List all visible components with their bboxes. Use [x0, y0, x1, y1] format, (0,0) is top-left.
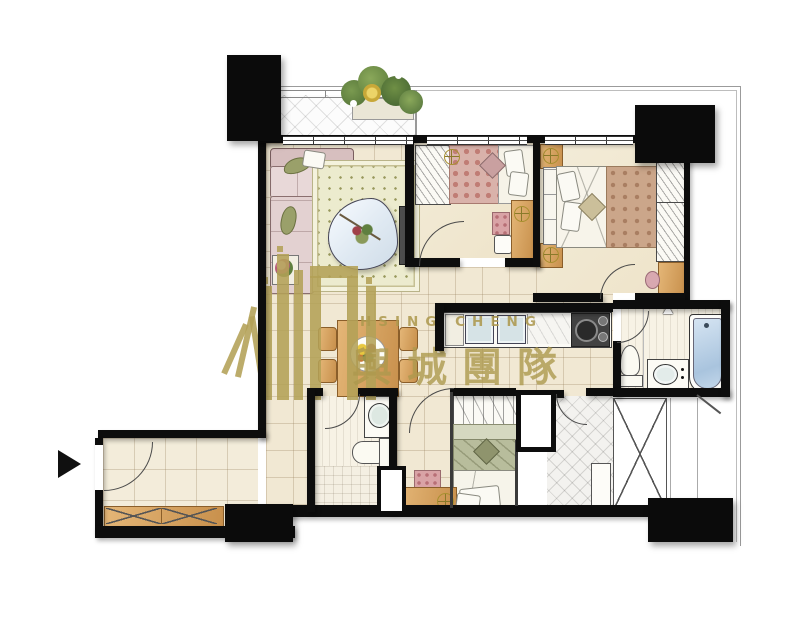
column-top-right: [635, 105, 715, 163]
sofa-pillow: [302, 149, 326, 169]
bathtub-water: [693, 318, 722, 389]
wall-bottom-main: [258, 505, 653, 517]
column-bottom-left: [225, 504, 293, 542]
pipe-shaft: [377, 466, 406, 515]
shoe-cabinet-panel: [106, 508, 162, 524]
window-balcony-slider: [283, 136, 413, 145]
bedroom2-nightstand: [492, 212, 510, 235]
toilet2-bowl: [352, 441, 382, 464]
wall-master-right: [684, 143, 690, 300]
pipe-shaft: [516, 390, 556, 452]
master-wardrobe-lower: [656, 202, 687, 262]
toilet-bowl: [620, 345, 640, 376]
balcony-flower-white: [350, 100, 357, 107]
wall-bath1-top: [613, 300, 730, 309]
ceiling-light-symbol: [543, 247, 559, 263]
bedroom2-pillow: [508, 171, 530, 197]
bedroom3-wardrobe: [453, 393, 517, 425]
water-heater-cabinet: [591, 463, 611, 510]
wall-bath1-bottom: [613, 388, 730, 397]
watermark-brand-latin: HSING CHENG: [360, 314, 543, 330]
wall-left: [258, 135, 266, 438]
ceiling-light-symbol: [514, 206, 530, 222]
wall-entry-door-gap: [95, 445, 103, 490]
ac-platform: [613, 398, 667, 510]
stove-burner-small: [598, 332, 608, 342]
bathroom2-basin: [368, 403, 391, 428]
table-flower-arrangement: [349, 222, 375, 244]
bathtub-drain: [704, 323, 709, 328]
faucet-dot: [681, 376, 684, 379]
balcony-plant: [399, 90, 423, 114]
stove-burner-large: [575, 319, 598, 342]
shoe-cabinet-panel: [162, 508, 217, 524]
wall-entry-top: [98, 430, 266, 438]
floor-plan-canvas: HSING CHENG 興城團隊: [0, 0, 800, 620]
wall-bath1-right: [721, 300, 730, 397]
wall-bedroom3-top: [450, 388, 516, 396]
stove-burner-small: [598, 316, 608, 326]
master-stool: [645, 271, 660, 289]
window-bedroom2: [427, 136, 527, 145]
parapet-line: [670, 398, 671, 508]
column-bottom-right: [648, 498, 733, 542]
bedroom3-nightstand: [414, 470, 441, 488]
wall-bath2-left: [307, 388, 315, 512]
faucet-dot: [681, 368, 684, 371]
bedroom2-chair: [494, 235, 512, 254]
bathroom1-basin: [653, 364, 678, 385]
ceiling-light-symbol: [444, 149, 460, 165]
column-top-left: [227, 55, 281, 141]
wall-balcony2-top-b: [586, 388, 613, 396]
window-master: [545, 136, 633, 145]
entrance-arrow-icon: [58, 450, 81, 478]
parapet-line: [697, 398, 698, 508]
balcony-flower-white: [395, 72, 402, 79]
wall-kitchen-pier: [435, 303, 444, 351]
wall-bedroom2-left: [405, 135, 414, 267]
watermark-brand-chinese: 興城團隊: [352, 335, 572, 393]
hallway-floor-left: [266, 396, 307, 505]
ceiling-light-symbol: [543, 148, 559, 164]
wall-master-bottom-a: [533, 293, 603, 302]
wall-kitchen-top: [435, 303, 613, 312]
balcony-flower: [363, 84, 381, 102]
wall-bedroom-divider: [533, 143, 540, 267]
